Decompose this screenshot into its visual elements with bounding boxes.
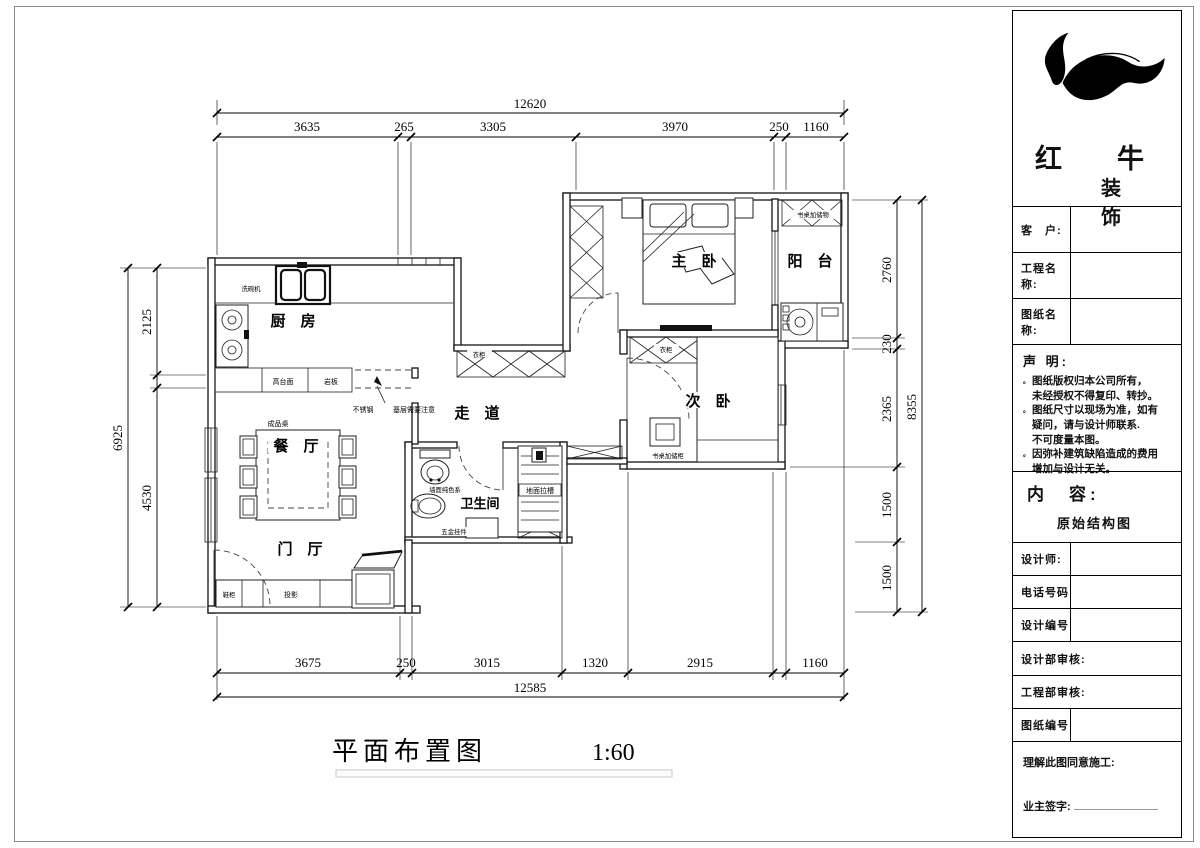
dim-top-5: 250 <box>769 119 789 134</box>
field-drawing-name: 图纸名称: <box>1013 298 1181 344</box>
dim-right-3: 2365 <box>879 396 894 422</box>
statement-title: 声 明: <box>1023 351 1175 370</box>
dim-right-4: 1500 <box>879 492 894 518</box>
dim-top-2: 265 <box>394 119 414 134</box>
desk-storage-balcony-label: 书桌加储物 <box>797 210 828 219</box>
dimension-chain-top: 12620 3635 265 3305 3970 250 1160 <box>213 96 848 255</box>
dim-right-2: 230 <box>879 334 894 354</box>
bathroom-fixtures: 墙面纯色系 地面拉槽 五金挂件 <box>411 446 562 538</box>
field-project: 工程名称: <box>1013 252 1181 298</box>
room-label-corridor: 走 道 <box>454 404 499 422</box>
desk-storage-second-label: 书桌加储柜 <box>652 451 683 460</box>
dim-left-2: 4530 <box>139 485 154 511</box>
room-label-entry: 门 厅 <box>277 540 322 558</box>
wardrobe-second-label: 衣柜 <box>660 345 673 354</box>
dining-furniture: 成品桌 <box>240 418 356 520</box>
room-label-master: 主 卧 <box>671 252 716 270</box>
drawing-sheet: 12620 3635 265 3305 3970 250 1160 <box>0 0 1200 848</box>
dim-top-4: 3970 <box>662 119 688 134</box>
project-label: 工程名称: <box>1013 253 1071 298</box>
stainless-label: 不锈钢 <box>353 405 374 414</box>
field-designer: 设计师: <box>1013 542 1181 575</box>
hardware-label: 五金挂件 <box>441 527 466 536</box>
red-bull-logo-icon <box>1035 27 1171 133</box>
drawing-name-label: 图纸名称: <box>1013 299 1071 344</box>
room-label-kitchen: 厨 房 <box>270 312 315 330</box>
dim-top-6: 1160 <box>803 119 829 134</box>
dimension-chain-left: 6925 2125 4530 <box>110 264 206 611</box>
engineering-review-label: 工程部审核: <box>1013 684 1086 700</box>
content-label: 内 容: <box>1027 480 1173 505</box>
statement-section: 声 明: 。 图纸版权归本公司所有， 未经授权不得复印、转抄。 。 图纸尺寸以现… <box>1013 344 1181 471</box>
shoe-cabinet-label: 鞋柜 <box>223 590 236 599</box>
brand-section: 红 牛 装 饰 <box>1013 11 1181 206</box>
dim-top-3: 3305 <box>480 119 506 134</box>
floor-groove-label: 地面拉槽 <box>526 486 554 495</box>
designer-label: 设计师: <box>1013 543 1071 575</box>
signature-line <box>1074 799 1158 810</box>
dim-left-total: 6925 <box>110 425 125 451</box>
base-note-label: 基层需要注意 <box>393 405 435 414</box>
sheet-scale-text: 1:60 <box>592 740 635 766</box>
dim-bot-6: 1160 <box>802 655 828 670</box>
room-label-dining: 餐 厅 <box>273 437 318 455</box>
dim-right-total: 8355 <box>904 394 919 420</box>
drawing-no-label: 图纸编号 <box>1013 709 1071 741</box>
dim-bot-1: 3675 <box>295 655 321 670</box>
balcony-fixtures: 书桌加储物 <box>781 210 843 341</box>
field-customer: 客 户: <box>1013 206 1181 252</box>
dim-right-1: 2760 <box>879 257 894 283</box>
field-design-review: 设计部审核: <box>1013 641 1181 675</box>
dim-right-5: 1500 <box>879 565 894 591</box>
dishwasher-label: 洗碗机 <box>242 284 262 293</box>
content-value: 原始结构图 <box>1057 513 1173 532</box>
bullet-marker: 。 <box>1023 374 1032 403</box>
dim-bot-3: 3015 <box>474 655 500 670</box>
phone-label: 电话号码 <box>1013 576 1071 608</box>
design-review-label: 设计部审核: <box>1013 651 1086 667</box>
dim-bot-total: 12585 <box>514 680 547 695</box>
agree-label: 理解此图同意施工: <box>1023 754 1173 770</box>
entry-furniture: 鞋柜 投影 <box>214 550 402 608</box>
room-label-bath: 卫生间 <box>460 496 499 511</box>
room-label-balcony: 阳 台 <box>787 252 832 270</box>
high-counter-label: 高台面 <box>273 377 294 386</box>
field-engineering-review: 工程部审核: <box>1013 675 1181 708</box>
dim-bot-4: 1320 <box>582 655 608 670</box>
master-bedroom-furniture <box>578 198 753 333</box>
dim-bot-5: 2915 <box>687 655 713 670</box>
title-block: 红 牛 装 饰 客 户: 工程名称: 图纸名称: 声 明: 。 图纸版权归本公司… <box>1012 10 1182 838</box>
field-design-no: 设计编号 <box>1013 608 1181 641</box>
dim-bot-2: 250 <box>396 655 416 670</box>
field-phone: 电话号码 <box>1013 575 1181 608</box>
wardrobe-hall-label: 衣柜 <box>473 350 486 359</box>
wall-finish-label: 墙面纯色系 <box>429 485 460 494</box>
brand-name: 红 牛 <box>1035 137 1158 176</box>
customer-label: 客 户: <box>1013 207 1071 252</box>
signature-label: 业主签字: <box>1023 801 1071 813</box>
slab-label: 岩板 <box>324 377 338 386</box>
statement-item: 。 图纸尺寸以现场为准，如有 疑问，请与设计师联系. 不可度量本图。 <box>1023 403 1175 447</box>
footer-section: 理解此图同意施工: 业主签字: <box>1013 741 1181 837</box>
room-label-second: 次 卧 <box>685 392 730 410</box>
dim-top-total: 12620 <box>514 96 547 111</box>
content-section: 内 容: 原始结构图 <box>1013 471 1181 542</box>
dim-left-1: 2125 <box>139 309 154 335</box>
sheet-title: 平面布置图 1:60 <box>332 737 672 777</box>
kitchen-fixtures: 洗碗机 高台面 岩板 不锈钢 基层需要注意 <box>215 262 453 414</box>
design-no-label: 设计编号 <box>1013 609 1071 641</box>
field-drawing-no: 图纸编号 <box>1013 708 1181 741</box>
statement-item: 。 图纸版权归本公司所有， 未经授权不得复印、转抄。 <box>1023 374 1175 403</box>
ready-table-label: 成品桌 <box>268 419 289 428</box>
bullet-marker: 。 <box>1023 403 1032 447</box>
dim-top-1: 3635 <box>294 119 320 134</box>
floor-plan-svg: 12620 3635 265 3305 3970 250 1160 <box>0 0 1008 848</box>
projector-label: 投影 <box>284 590 298 599</box>
sheet-title-text: 平面布置图 <box>332 737 487 766</box>
